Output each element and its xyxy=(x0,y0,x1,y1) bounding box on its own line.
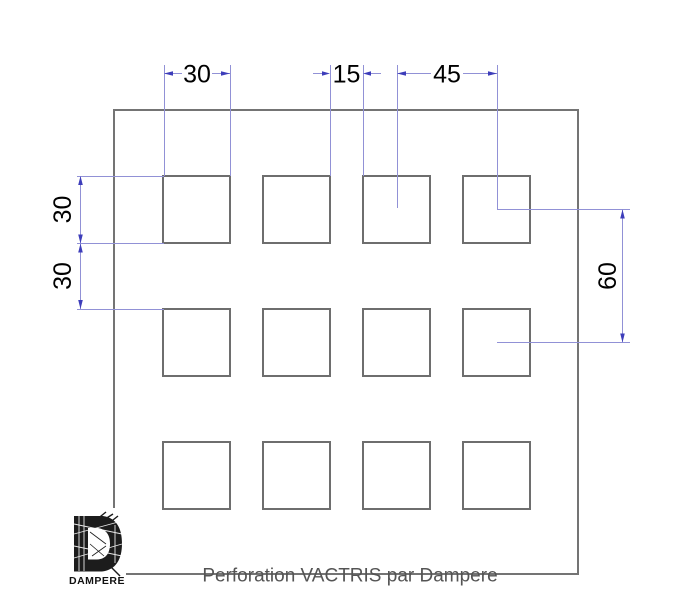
hole-r2c2 xyxy=(263,309,330,376)
arrow-60-top-up xyxy=(620,210,625,219)
hole-r3c2 xyxy=(263,442,330,509)
arrow-pitch-left xyxy=(397,71,406,76)
hole-r2c3 xyxy=(363,309,430,376)
arrow-left-mid-up xyxy=(78,244,83,253)
perforation-drawing: 30 15 45 30 30 60 Perforation VACTRIS pa… xyxy=(0,0,700,600)
dimension-lines xyxy=(77,65,630,343)
arrow-60-bottom-down xyxy=(620,334,625,343)
dim-label-hole-height: 30 xyxy=(49,196,77,224)
hole-r1c3 xyxy=(363,176,430,243)
hole-r1c1 xyxy=(163,176,230,243)
arrow-pitch-right xyxy=(488,71,497,76)
arrow-left-bottom-down xyxy=(78,300,83,309)
drawing-caption: Perforation VACTRIS par Dampere xyxy=(202,566,497,587)
arrow-gap-right xyxy=(363,71,371,75)
arrow-hole-width-right xyxy=(221,71,230,76)
ext-line-pitch-right-to-60 xyxy=(498,65,631,210)
technical-drawing-canvas: 30 15 45 30 30 60 Perforation VACTRIS pa… xyxy=(0,0,700,600)
dimension-arrows xyxy=(78,71,625,342)
dim-label-vertical-pitch: 60 xyxy=(594,262,622,290)
dim-label-hole-width: 30 xyxy=(183,60,211,88)
dampere-logo-text: DAMPERE xyxy=(69,575,125,587)
hole-r2c1 xyxy=(163,309,230,376)
hole-r3c1 xyxy=(163,442,230,509)
arrow-left-mid-down xyxy=(78,235,83,244)
dim-label-horizontal-pitch: 45 xyxy=(433,60,461,88)
arrow-gap-left xyxy=(322,71,330,75)
hole-grid xyxy=(163,176,530,509)
arrow-hole-width-left xyxy=(164,71,173,76)
hole-r3c4 xyxy=(463,442,530,509)
dim-label-horizontal-gap: 15 xyxy=(333,60,361,88)
hole-r1c2 xyxy=(263,176,330,243)
arrow-left-top-up xyxy=(78,176,83,185)
dim-label-vertical-gap: 30 xyxy=(49,262,77,290)
dampere-logo: DAMPERE xyxy=(67,508,126,591)
hole-r3c3 xyxy=(363,442,430,509)
